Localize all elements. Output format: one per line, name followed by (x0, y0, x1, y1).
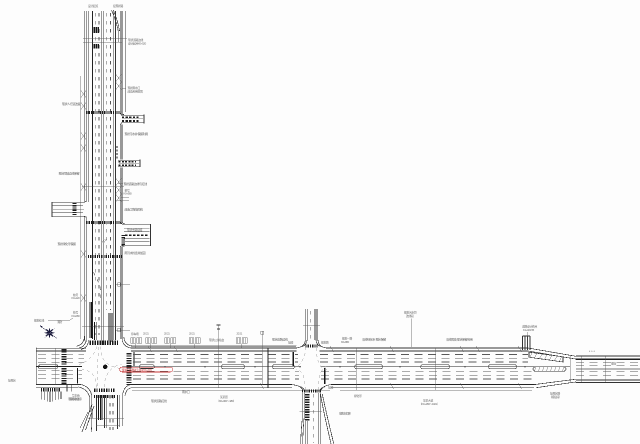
svg-text:改造利用范围: 改造利用范围 (128, 90, 143, 94)
svg-text:消防: 消防 (57, 320, 62, 324)
svg-text:改造工程范围线: 改造工程范围线 (125, 207, 144, 212)
svg-text:20 21: 20 21 (237, 332, 243, 336)
svg-text:现状道路边线与红线: 现状道路边线与红线 (124, 181, 148, 186)
svg-text:（规划支路）: （规划支路） (337, 410, 353, 415)
svg-text:接现状路: 接现状路 (113, 4, 123, 8)
svg-text:道路中线: 道路中线 (69, 397, 79, 401)
svg-text:设计起点: 设计起点 (88, 4, 98, 8)
svg-text:雨水口: 雨水口 (182, 390, 190, 394)
svg-text:雨污水检查井加固: 雨污水检查井加固 (125, 250, 146, 255)
svg-text:设计起点K0+520: 设计起点K0+520 (128, 42, 147, 46)
svg-text:K0+380: K0+380 (124, 192, 133, 196)
svg-text:K1+021.55: K1+021.55 (523, 328, 535, 332)
svg-text:接顺: 接顺 (328, 385, 333, 389)
svg-text:接顺: 接顺 (288, 341, 293, 345)
svg-text:规划红线: 规划红线 (34, 318, 44, 322)
svg-text:规划路: 规划路 (321, 341, 329, 345)
svg-text:改线段: 改线段 (406, 314, 414, 318)
svg-text:停车场: 停车场 (131, 332, 139, 336)
svg-text:（K0+000～180）: （K0+000～180） (217, 399, 236, 403)
svg-text:20 21: 20 21 (189, 332, 195, 336)
svg-text:现状公交站台: 现状公交站台 (209, 338, 224, 342)
svg-text:接现状: 接现状 (8, 379, 16, 383)
svg-text:现状道路红线: 现状道路红线 (151, 398, 167, 403)
svg-text:K0+120: K0+120 (72, 296, 81, 300)
svg-text:K0+860: K0+860 (341, 340, 350, 344)
svg-text:20 21: 20 21 (164, 332, 170, 336)
svg-text:* * *: * * * (589, 350, 596, 354)
svg-text:K0+080: K0+080 (72, 314, 81, 318)
svg-text:（顺接段）: （顺接段） (549, 395, 562, 399)
svg-text:现状道路边线: 现状道路边线 (272, 336, 288, 341)
svg-text:现状人行道改造: 现状人行道改造 (62, 101, 81, 106)
svg-text:沿线围墙 现状保留利用: 沿线围墙 现状保留利用 (446, 336, 473, 341)
svg-text:现状支路接顺: 现状支路接顺 (127, 228, 142, 232)
svg-text:现状绿化带保留: 现状绿化带保留 (58, 241, 77, 246)
svg-text:（K0+180～1021）: （K0+180～1021） (419, 402, 439, 406)
svg-text:沿线绿化带 现状保留: 沿线绿化带 现状保留 (362, 336, 386, 341)
svg-text:20 21: 20 21 (143, 332, 149, 336)
svg-text:现状污水井保留利用: 现状污水井保留利用 (125, 131, 149, 136)
svg-text:绿化带: 绿化带 (354, 394, 362, 398)
svg-text:顺接: 顺接 (611, 362, 616, 366)
svg-text:现状围墙边线保留: 现状围墙边线保留 (59, 170, 80, 175)
